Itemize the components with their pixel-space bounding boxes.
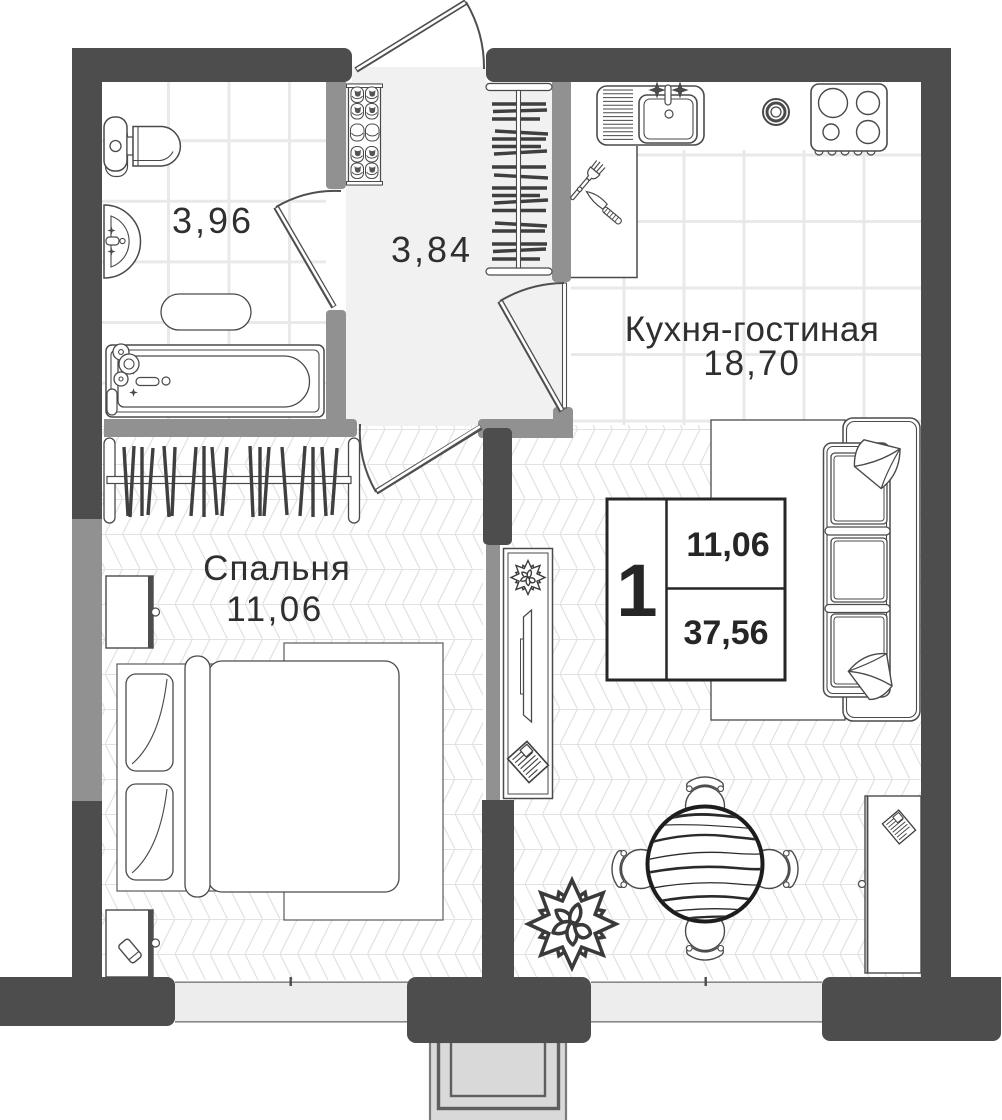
svg-text:Спальня: Спальня [203,549,351,588]
svg-text:18,70: 18,70 [703,344,801,383]
svg-text:11,06: 11,06 [226,590,324,629]
svg-text:1: 1 [616,549,657,632]
svg-text:3,84: 3,84 [391,229,473,270]
svg-text:3,96: 3,96 [172,200,254,241]
svg-text:11,06: 11,06 [686,526,769,564]
svg-text:37,56: 37,56 [683,614,768,652]
